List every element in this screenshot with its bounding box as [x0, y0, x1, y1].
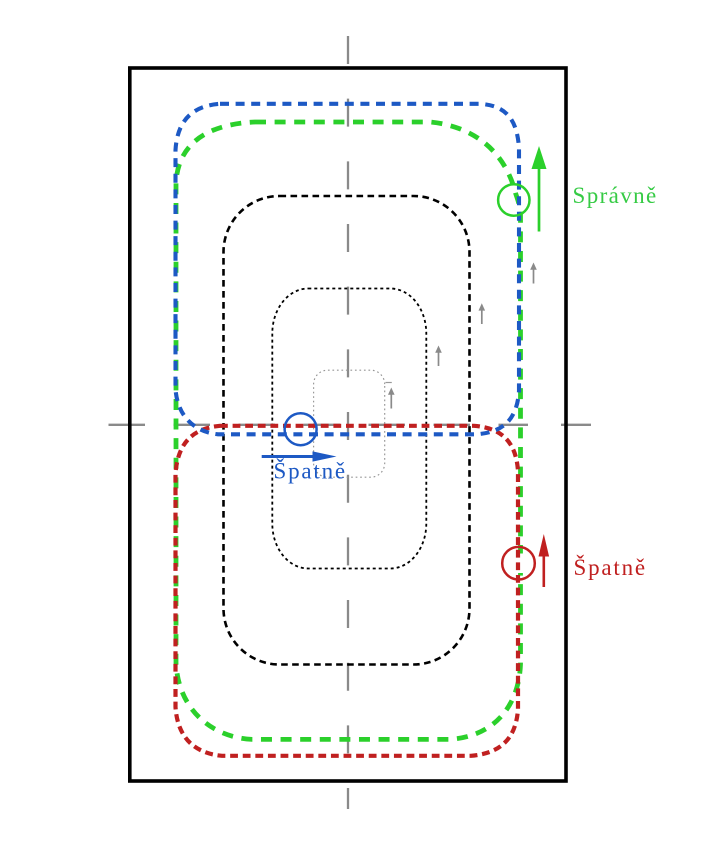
svg-text:Špatně: Špatně [274, 458, 347, 484]
svg-text:Špatně: Špatně [574, 554, 647, 580]
svg-text:Správně: Správně [573, 183, 658, 208]
